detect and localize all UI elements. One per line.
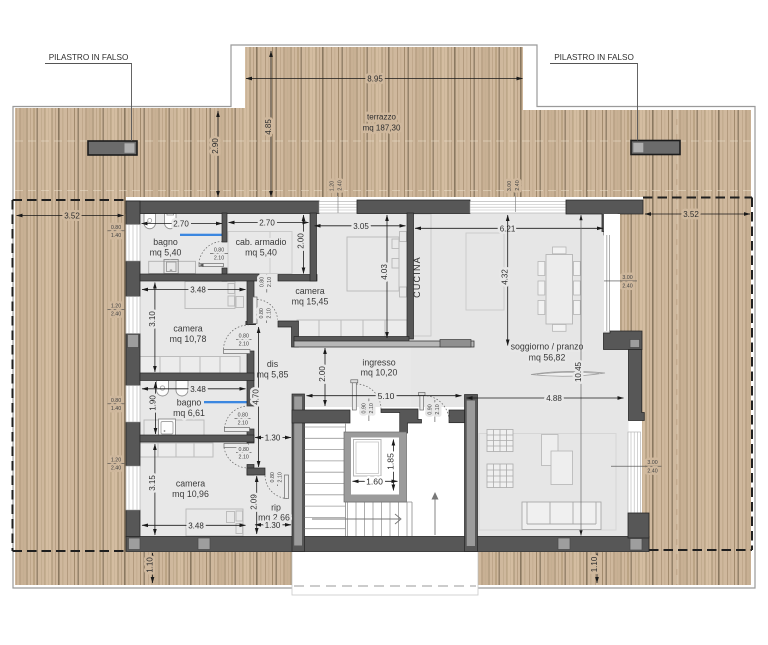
svg-text:0.80: 0.80 xyxy=(239,334,249,340)
svg-text:2.70: 2.70 xyxy=(173,220,189,229)
svg-text:0.80: 0.80 xyxy=(238,413,248,419)
svg-text:bagno: bagno xyxy=(177,398,202,408)
svg-text:3.52: 3.52 xyxy=(683,210,699,219)
svg-text:1.20: 1.20 xyxy=(111,303,121,309)
svg-text:0.90: 0.90 xyxy=(361,403,367,413)
svg-text:2.40: 2.40 xyxy=(622,283,632,289)
svg-text:2.10: 2.10 xyxy=(239,341,249,347)
svg-text:0.80: 0.80 xyxy=(259,308,265,318)
svg-text:2.10: 2.10 xyxy=(267,277,273,287)
svg-text:2.40: 2.40 xyxy=(111,465,121,471)
svg-text:2.10: 2.10 xyxy=(435,404,441,414)
svg-text:3.48: 3.48 xyxy=(188,521,204,530)
svg-text:2.10: 2.10 xyxy=(238,420,248,426)
svg-text:0.90: 0.90 xyxy=(427,404,433,414)
svg-text:mq 5,85: mq 5,85 xyxy=(257,370,289,380)
svg-text:0.80: 0.80 xyxy=(214,248,224,254)
svg-text:mq 6,61: mq 6,61 xyxy=(173,408,205,418)
svg-text:4.88: 4.88 xyxy=(546,394,562,403)
svg-text:0.80: 0.80 xyxy=(270,472,276,482)
svg-text:2.10: 2.10 xyxy=(266,308,272,318)
svg-text:0.80: 0.80 xyxy=(111,398,121,404)
svg-text:mq 10,96: mq 10,96 xyxy=(172,489,209,499)
svg-text:3.00: 3.00 xyxy=(647,460,657,466)
svg-text:PILASTRO IN FALSO: PILASTRO IN FALSO xyxy=(49,53,129,62)
svg-text:camera: camera xyxy=(173,324,202,334)
svg-text:0.80: 0.80 xyxy=(111,225,121,231)
svg-text:3.48: 3.48 xyxy=(190,385,206,394)
svg-text:4.85: 4.85 xyxy=(264,119,273,135)
svg-text:mq 10,20: mq 10,20 xyxy=(361,368,398,378)
svg-text:2.00: 2.00 xyxy=(318,366,327,382)
svg-text:4.70: 4.70 xyxy=(252,389,261,405)
svg-text:mq 10,78: mq 10,78 xyxy=(170,334,207,344)
svg-text:cab. armadio: cab. armadio xyxy=(236,237,287,247)
svg-text:1.60: 1.60 xyxy=(366,477,383,487)
svg-text:2.10: 2.10 xyxy=(214,256,224,262)
svg-text:1.20: 1.20 xyxy=(111,457,121,463)
svg-text:2.40: 2.40 xyxy=(647,469,657,475)
svg-text:1.30: 1.30 xyxy=(265,521,281,530)
svg-text:1.10: 1.10 xyxy=(146,557,155,573)
svg-text:mq 56,82: mq 56,82 xyxy=(529,353,566,363)
svg-text:1.30: 1.30 xyxy=(265,434,281,443)
svg-text:2.70: 2.70 xyxy=(259,219,275,228)
svg-text:0.80: 0.80 xyxy=(259,277,265,287)
svg-text:2.09: 2.09 xyxy=(250,494,259,510)
svg-text:2.90: 2.90 xyxy=(211,138,220,154)
svg-text:mq 187,30: mq 187,30 xyxy=(363,124,401,133)
svg-text:3.00: 3.00 xyxy=(622,275,632,281)
svg-text:1.85: 1.85 xyxy=(385,453,395,470)
svg-text:mq 15,45: mq 15,45 xyxy=(292,297,329,307)
svg-text:1.90: 1.90 xyxy=(149,395,158,411)
svg-text:2.10: 2.10 xyxy=(369,403,375,413)
svg-text:ingresso: ingresso xyxy=(362,358,395,368)
svg-text:0.80: 0.80 xyxy=(239,447,249,453)
svg-text:5.10: 5.10 xyxy=(378,391,395,401)
svg-text:3.52: 3.52 xyxy=(64,212,80,221)
svg-text:soggiorno / pranzo: soggiorno / pranzo xyxy=(511,342,584,352)
svg-text:2.10: 2.10 xyxy=(277,472,283,482)
svg-text:camera: camera xyxy=(176,479,205,489)
svg-text:3.48: 3.48 xyxy=(190,286,206,295)
svg-text:3.10: 3.10 xyxy=(148,311,157,327)
svg-text:8.95: 8.95 xyxy=(367,75,383,84)
svg-text:CUCINA: CUCINA xyxy=(412,256,422,298)
svg-text:1.20: 1.20 xyxy=(330,181,336,191)
svg-text:3.15: 3.15 xyxy=(148,475,157,491)
svg-text:bagno: bagno xyxy=(153,237,178,247)
svg-text:mq 5,40: mq 5,40 xyxy=(150,248,182,258)
svg-text:mq 5,40: mq 5,40 xyxy=(245,248,277,258)
svg-text:3.05: 3.05 xyxy=(353,222,369,231)
svg-text:2.40: 2.40 xyxy=(111,311,121,317)
svg-text:1.40: 1.40 xyxy=(111,233,121,239)
svg-text:1.40: 1.40 xyxy=(111,406,121,412)
svg-text:1.10: 1.10 xyxy=(590,556,599,572)
svg-text:2.10: 2.10 xyxy=(239,455,249,461)
svg-text:2.00: 2.00 xyxy=(297,233,306,249)
svg-text:3.00: 3.00 xyxy=(507,181,513,191)
svg-text:4.03: 4.03 xyxy=(380,264,389,280)
svg-text:rip: rip xyxy=(271,503,281,513)
svg-text:4.32: 4.32 xyxy=(501,269,510,285)
svg-text:2.40: 2.40 xyxy=(515,180,521,190)
svg-text:PILASTRO IN FALSO: PILASTRO IN FALSO xyxy=(554,53,634,62)
svg-text:2.40: 2.40 xyxy=(338,180,344,190)
svg-text:10.45: 10.45 xyxy=(574,361,583,382)
svg-text:terrazzo: terrazzo xyxy=(367,113,396,122)
svg-text:dis: dis xyxy=(267,359,279,369)
svg-text:camera: camera xyxy=(295,286,324,296)
